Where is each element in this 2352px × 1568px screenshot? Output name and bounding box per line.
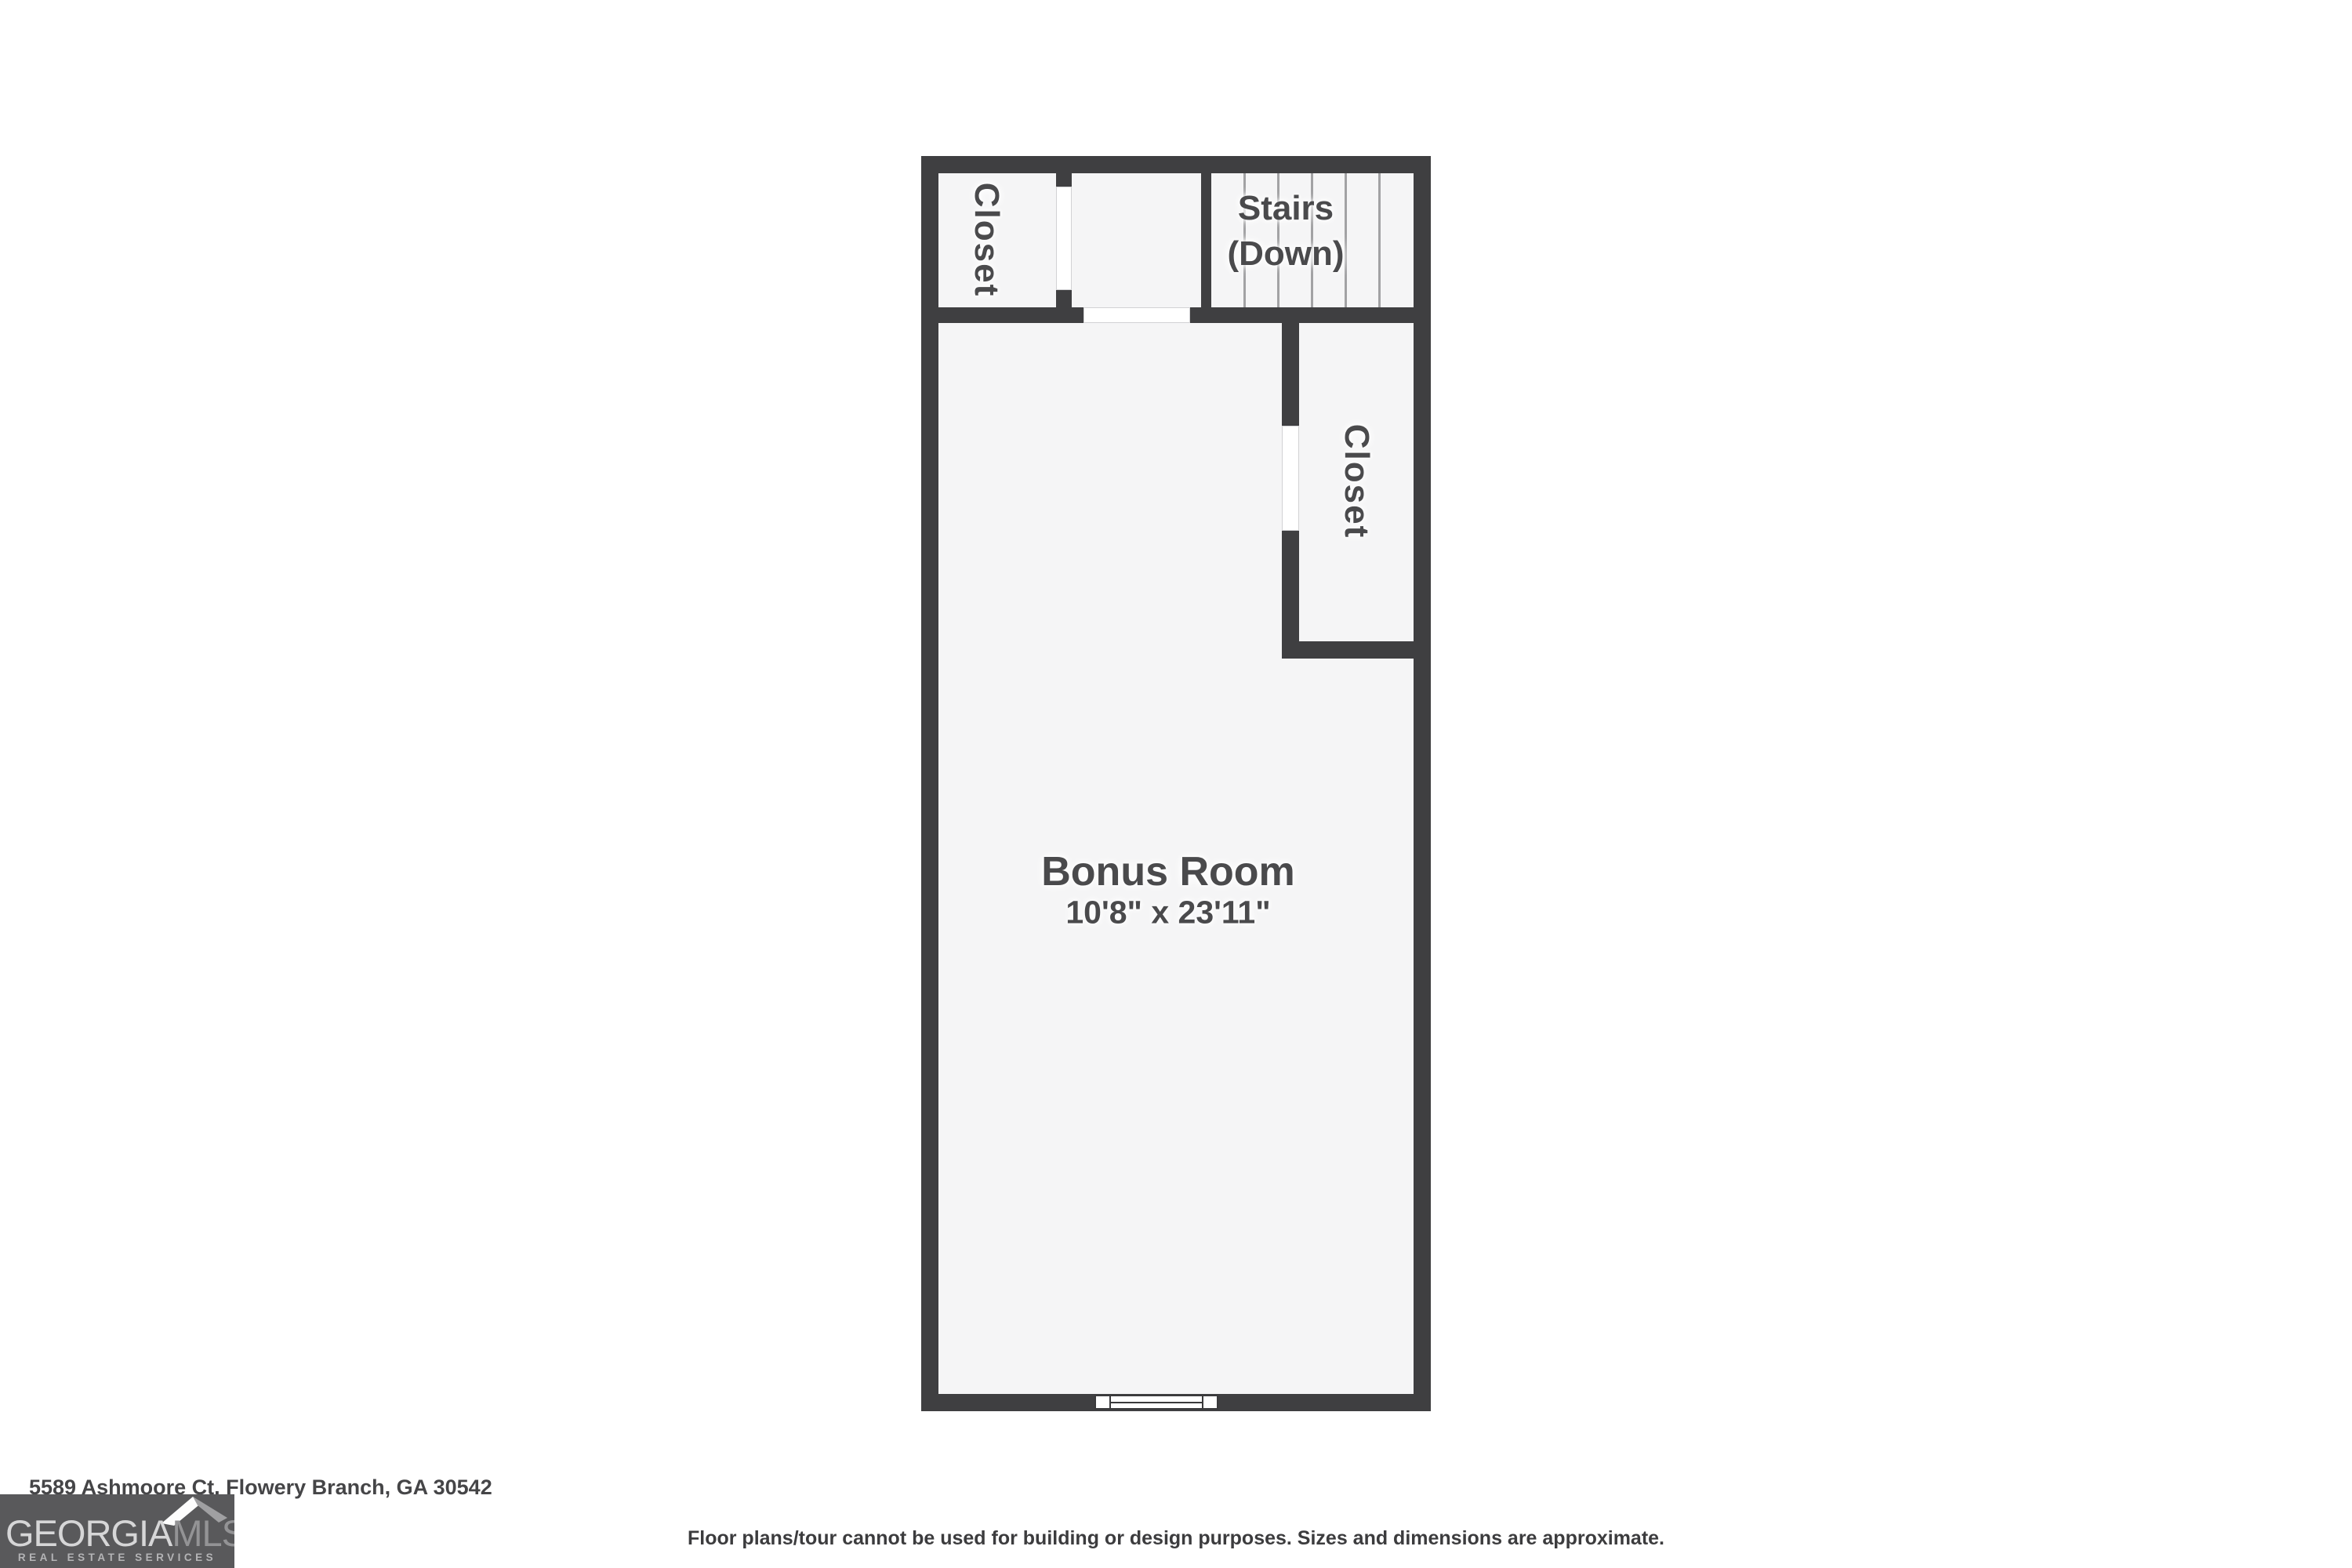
window-pane — [1111, 1396, 1202, 1408]
stairs-label: Stairs (Down) — [1227, 186, 1344, 277]
bonus-room-label: Bonus Room — [1041, 848, 1295, 895]
floor-plan: Closet Stairs (Down) Closet Bonus Room 1… — [0, 0, 2352, 1568]
logo-tagline: REAL ESTATE SERVICES — [0, 1552, 234, 1563]
right-closet-door-opening — [1282, 426, 1299, 531]
window-end-post — [1096, 1396, 1111, 1408]
georgia-mls-logo: GEORGIAMLS REAL ESTATE SERVICES — [0, 1494, 234, 1568]
window-pane-line — [1111, 1402, 1202, 1403]
floor-area — [938, 173, 1414, 1394]
stair-tread-line — [1378, 173, 1381, 307]
outer-wall-left — [921, 156, 938, 1411]
window-symbol — [1094, 1395, 1218, 1410]
stair-tread-line — [1345, 173, 1347, 307]
hall-door-opening — [1083, 307, 1190, 323]
top-closet-label: Closet — [967, 183, 1006, 297]
right-closet-label: Closet — [1337, 424, 1376, 539]
window-end-post — [1202, 1396, 1217, 1408]
stairs-divider-wall — [1201, 173, 1211, 307]
outer-wall-right — [1414, 156, 1431, 1411]
disclaimer-text: Floor plans/tour cannot be used for buil… — [0, 1527, 2352, 1550]
right-closet-bottom-wall — [1282, 641, 1431, 659]
logo-brand-text: GEORGIAMLS — [5, 1515, 234, 1552]
stairs-label-line1: Stairs — [1238, 189, 1334, 227]
logo-mls-text: MLS — [172, 1512, 234, 1554]
outer-wall-top — [921, 156, 1431, 173]
stairs-label-line2: (Down) — [1227, 234, 1344, 273]
floor-plan-page: Closet Stairs (Down) Closet Bonus Room 1… — [0, 0, 2352, 1568]
bonus-room-dimensions: 10'8" x 23'11" — [1065, 895, 1270, 931]
top-closet-door-opening — [1056, 187, 1072, 290]
logo-georgia-text: GEORGIA — [5, 1512, 172, 1554]
